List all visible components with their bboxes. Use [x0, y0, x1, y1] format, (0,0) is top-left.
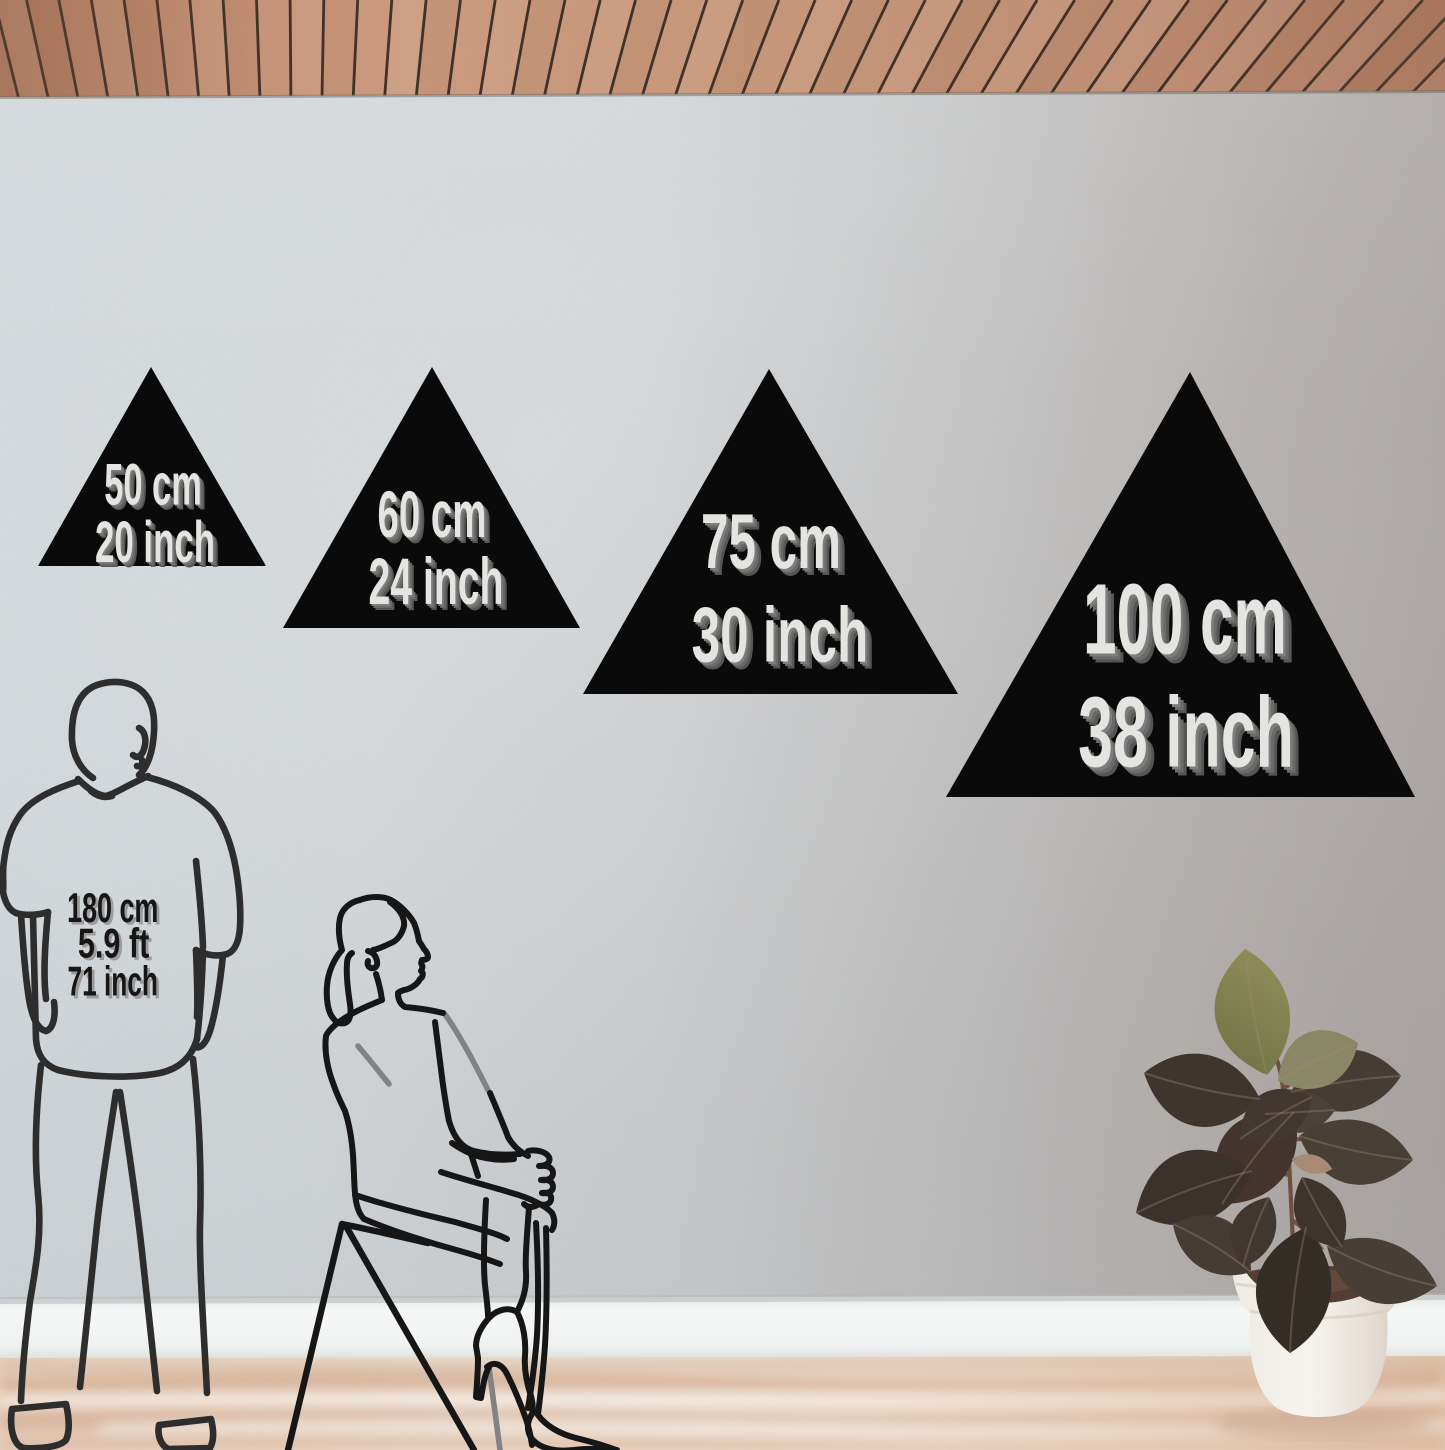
svg-text:38 inch: 38 inch: [1078, 675, 1294, 788]
svg-text:60 cm: 60 cm: [378, 478, 487, 551]
svg-text:71 inch: 71 inch: [67, 958, 157, 1005]
svg-text:100 cm: 100 cm: [1083, 564, 1287, 676]
svg-text:20 inch: 20 inch: [95, 511, 215, 575]
svg-text:75 cm: 75 cm: [701, 497, 841, 584]
svg-text:30 inch: 30 inch: [692, 591, 869, 678]
svg-text:50 cm: 50 cm: [104, 453, 202, 517]
svg-text:24 inch: 24 inch: [369, 544, 504, 618]
